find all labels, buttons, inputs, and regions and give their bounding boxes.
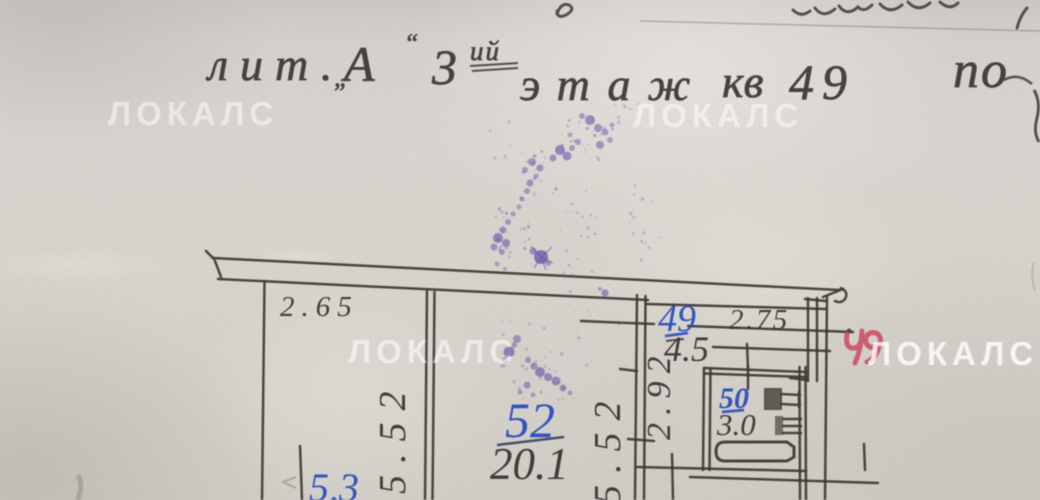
svg-text:2.65: 2.65 <box>280 291 359 323</box>
svg-text:“: “ <box>404 29 418 58</box>
svg-text:5.52: 5.52 <box>372 380 414 495</box>
svg-text:ЛОКАЛС: ЛОКАЛС <box>633 97 803 134</box>
svg-text:ЛОКАЛС: ЛОКАЛС <box>868 335 1038 372</box>
svg-text:ий: ий <box>470 36 501 66</box>
svg-text:2.75: 2.75 <box>729 304 790 336</box>
svg-text:по: по <box>953 42 1009 99</box>
svg-text:ЛОКАЛС: ЛОКАЛС <box>348 333 518 370</box>
svg-text:52: 52 <box>505 392 555 448</box>
svg-text:А: А <box>341 36 375 92</box>
svg-text:ЛОКАЛС: ЛОКАЛС <box>108 95 278 132</box>
svg-text:5.52: 5.52 <box>587 390 629 500</box>
svg-text:лит.: лит. <box>205 39 344 90</box>
svg-text:2.92: 2.92 <box>641 349 678 441</box>
svg-text:5,3: 5,3 <box>309 465 359 500</box>
svg-text:3: 3 <box>431 39 457 95</box>
